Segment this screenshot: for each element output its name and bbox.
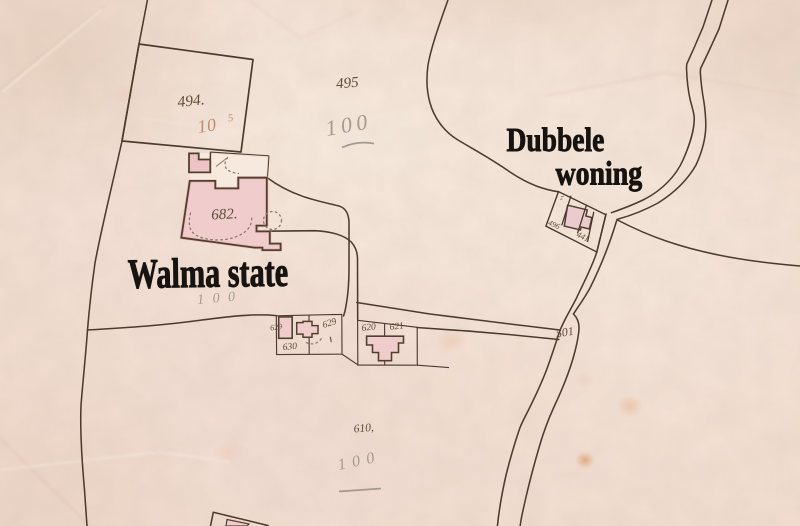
svg-text:610,: 610, xyxy=(353,422,374,436)
svg-text:629: 629 xyxy=(270,322,283,333)
svg-text:620: 620 xyxy=(361,322,377,334)
svg-text:630: 630 xyxy=(282,342,297,353)
svg-text:495: 495 xyxy=(335,75,359,93)
svg-text:10: 10 xyxy=(196,114,218,137)
svg-text:woning: woning xyxy=(556,154,643,192)
svg-text:Walma state: Walma state xyxy=(127,248,288,297)
svg-text:621: 621 xyxy=(389,321,404,333)
svg-text:682.: 682. xyxy=(211,206,238,223)
svg-text:494.: 494. xyxy=(177,91,206,111)
svg-text:501: 501 xyxy=(555,324,575,341)
